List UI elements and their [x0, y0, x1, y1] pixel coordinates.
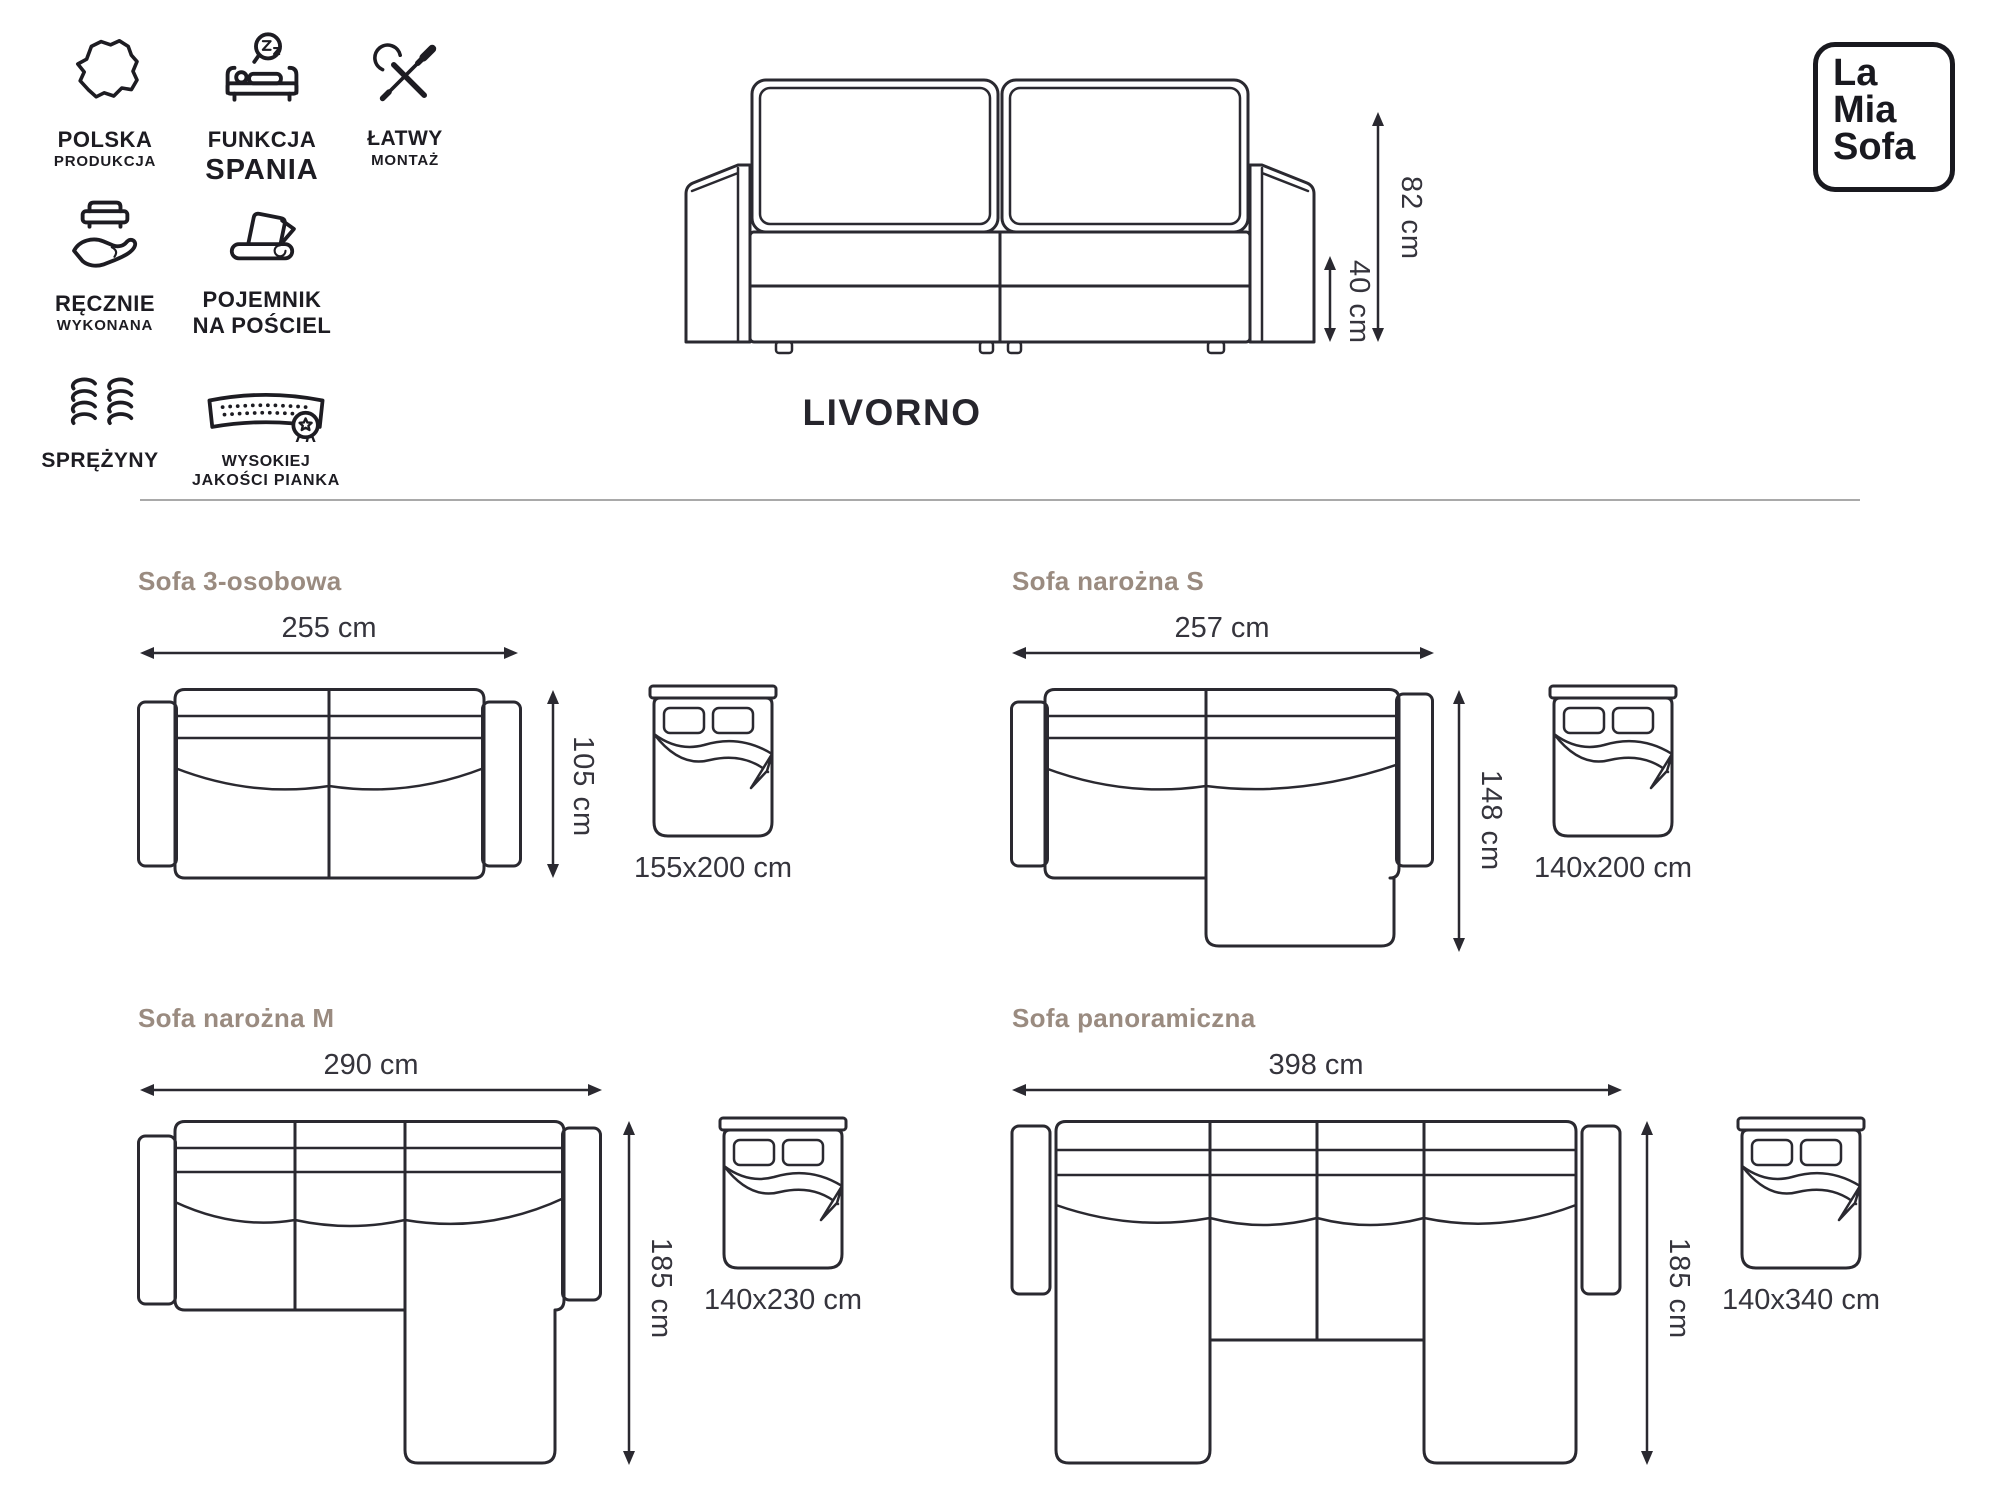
- brand-line-3: Sofa: [1833, 129, 1950, 166]
- easy-assembly-icon: [363, 36, 447, 116]
- depth-arrow: [546, 690, 560, 878]
- sofa-front-view-drawing: [680, 76, 1320, 366]
- feature-polska-produkcja: POLSKA PRODUKCJA: [30, 36, 180, 172]
- width-arrow: [140, 646, 518, 660]
- depth-arrow: [622, 1121, 636, 1465]
- springs-icon: [56, 372, 144, 438]
- variant-depth-label: 105 cm: [566, 736, 599, 837]
- feature-wysokiej-jakosci-pianka: WYSOKIEJ JAKOŚCI PIANKA: [176, 376, 356, 492]
- variant-width-label: 290 cm: [271, 1049, 471, 1082]
- variant-title-sofa-narozna-m: Sofa narożna M: [138, 1003, 334, 1034]
- feature-label: ŁATWY: [330, 127, 480, 151]
- variant-title-sofa-3-osobowa: Sofa 3-osobowa: [138, 566, 342, 597]
- feature-sprezyny: SPRĘŻYNY: [25, 372, 175, 473]
- spec-sheet: POLSKA PRODUKCJA FUNKCJA SPANIA: [0, 0, 2000, 1500]
- width-arrow: [1012, 646, 1434, 660]
- feature-label: POJEMNIK: [187, 287, 337, 312]
- product-title: LIVORNO: [772, 392, 1012, 434]
- sofa-top-view-narozna-s: [1010, 688, 1434, 950]
- brand-line-1: La: [1833, 55, 1950, 92]
- sleep-function-icon: [216, 30, 308, 116]
- brand-line-2: Mia: [1833, 92, 1950, 129]
- feature-label: WYSOKIEJ: [176, 453, 356, 471]
- feature-sublabel: SPANIA: [187, 152, 337, 190]
- width-arrow: [140, 1083, 602, 1097]
- depth-arrow: [1640, 1121, 1654, 1465]
- feature-sublabel: JAKOŚCI PIANKA: [176, 471, 356, 492]
- handmade-icon: [59, 194, 151, 280]
- bedding-container-icon: [216, 192, 308, 276]
- sofa-top-view-narozna-m: [137, 1120, 602, 1465]
- feature-pojemnik-na-posciel: POJEMNIK NA POŚCIEL: [187, 192, 337, 341]
- bed-size-icon: [648, 684, 778, 840]
- brand-logo: La Mia Sofa: [1813, 42, 1955, 192]
- bed-size-icon: [1548, 684, 1678, 840]
- bed-size-icon: [718, 1116, 848, 1272]
- total-height-label: 82 cm: [1394, 176, 1427, 260]
- variant-title-sofa-narozna-s: Sofa narożna S: [1012, 566, 1204, 597]
- variant-width-label: 398 cm: [1216, 1049, 1416, 1082]
- feature-latwy-montaz: ŁATWY MONTAŻ: [330, 36, 480, 171]
- feature-label: RĘCZNIE: [30, 291, 180, 316]
- feature-sublabel: NA POŚCIEL: [187, 312, 337, 341]
- feature-label: FUNKCJA: [187, 127, 337, 152]
- seat-height-arrow: [1323, 256, 1337, 342]
- width-arrow: [1012, 1083, 1622, 1097]
- depth-arrow: [1452, 690, 1466, 952]
- total-height-arrow: [1371, 112, 1385, 342]
- feature-recznie-wykonana: RĘCZNIE WYKONANA: [30, 194, 180, 336]
- bed-size-icon: [1736, 1116, 1866, 1272]
- feature-sublabel: MONTAŻ: [330, 151, 480, 171]
- bed-size-label: 140x230 cm: [663, 1284, 903, 1317]
- feature-funkcja-spania: FUNKCJA SPANIA: [187, 30, 337, 190]
- section-divider: [140, 499, 1860, 501]
- feature-sublabel: PRODUKCJA: [30, 152, 180, 172]
- variant-width-label: 257 cm: [1122, 612, 1322, 645]
- poland-map-icon: [63, 36, 147, 116]
- feature-label: SPRĘŻYNY: [25, 449, 175, 473]
- feature-label: POLSKA: [30, 127, 180, 152]
- sofa-top-view-panoramiczna: [1010, 1120, 1622, 1465]
- bed-size-label: 140x340 cm: [1681, 1284, 1921, 1317]
- variant-width-label: 255 cm: [229, 612, 429, 645]
- foam-icon: [193, 376, 339, 442]
- bed-size-label: 140x200 cm: [1493, 852, 1733, 885]
- feature-sublabel: WYKONANA: [30, 316, 180, 336]
- sofa-top-view-3-osobowa: [137, 688, 522, 882]
- bed-size-label: 155x200 cm: [593, 852, 833, 885]
- variant-title-sofa-panoramiczna: Sofa panoramiczna: [1012, 1003, 1256, 1034]
